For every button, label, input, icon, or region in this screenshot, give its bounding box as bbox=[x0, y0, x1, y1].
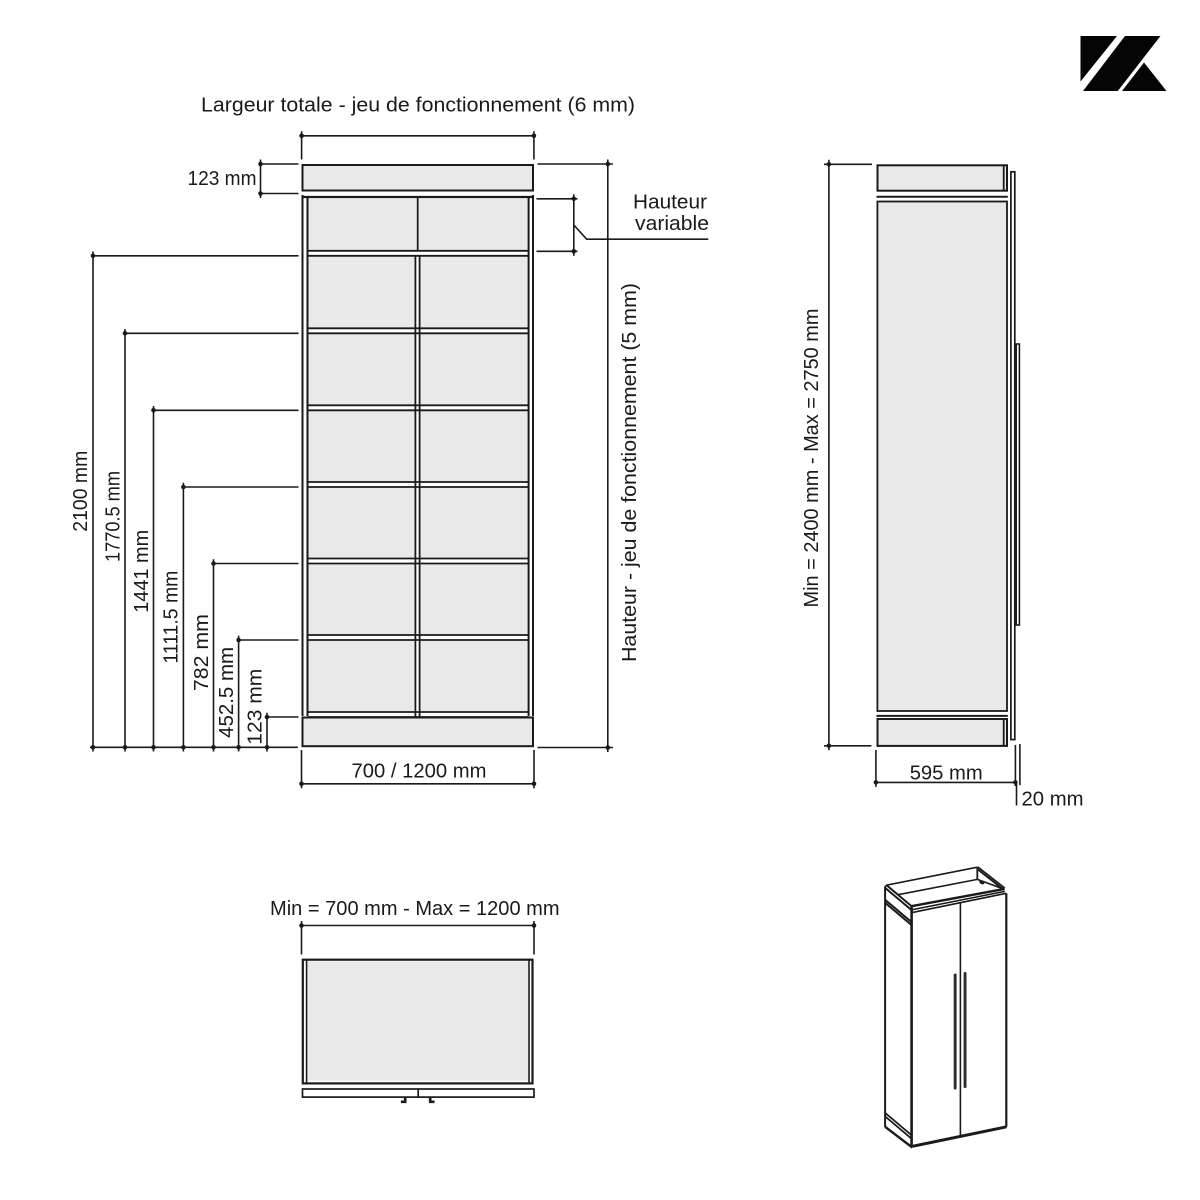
svg-text:123 mm: 123 mm bbox=[243, 669, 266, 745]
svg-text:2100 mm: 2100 mm bbox=[69, 451, 92, 532]
svg-text:variable: variable bbox=[635, 212, 709, 235]
svg-text:452.5 mm: 452.5 mm bbox=[215, 647, 238, 738]
svg-text:1111.5 mm: 1111.5 mm bbox=[160, 571, 183, 664]
svg-text:1770.5 mm: 1770.5 mm bbox=[101, 471, 124, 562]
svg-text:595 mm: 595 mm bbox=[910, 762, 983, 785]
svg-text:700 / 1200 mm: 700 / 1200 mm bbox=[352, 760, 487, 783]
svg-text:782 mm: 782 mm bbox=[190, 614, 213, 691]
svg-text:Min = 2400 mm - Max = 2750 mm: Min = 2400 mm - Max = 2750 mm bbox=[800, 309, 823, 608]
svg-text:1441 mm: 1441 mm bbox=[130, 530, 153, 613]
svg-text:123 mm: 123 mm bbox=[188, 167, 257, 190]
svg-text:Largeur totale - jeu de foncti: Largeur totale - jeu de fonctionnement (… bbox=[201, 94, 635, 117]
svg-text:Min = 700 mm - Max = 1200 mm: Min = 700 mm - Max = 1200 mm bbox=[270, 897, 560, 920]
svg-text:Hauteur - jeu de fonctionnemen: Hauteur - jeu de fonctionnement (5 mm) bbox=[618, 283, 641, 662]
svg-text:Hauteur: Hauteur bbox=[633, 191, 707, 214]
svg-text:20 mm: 20 mm bbox=[1022, 788, 1084, 811]
